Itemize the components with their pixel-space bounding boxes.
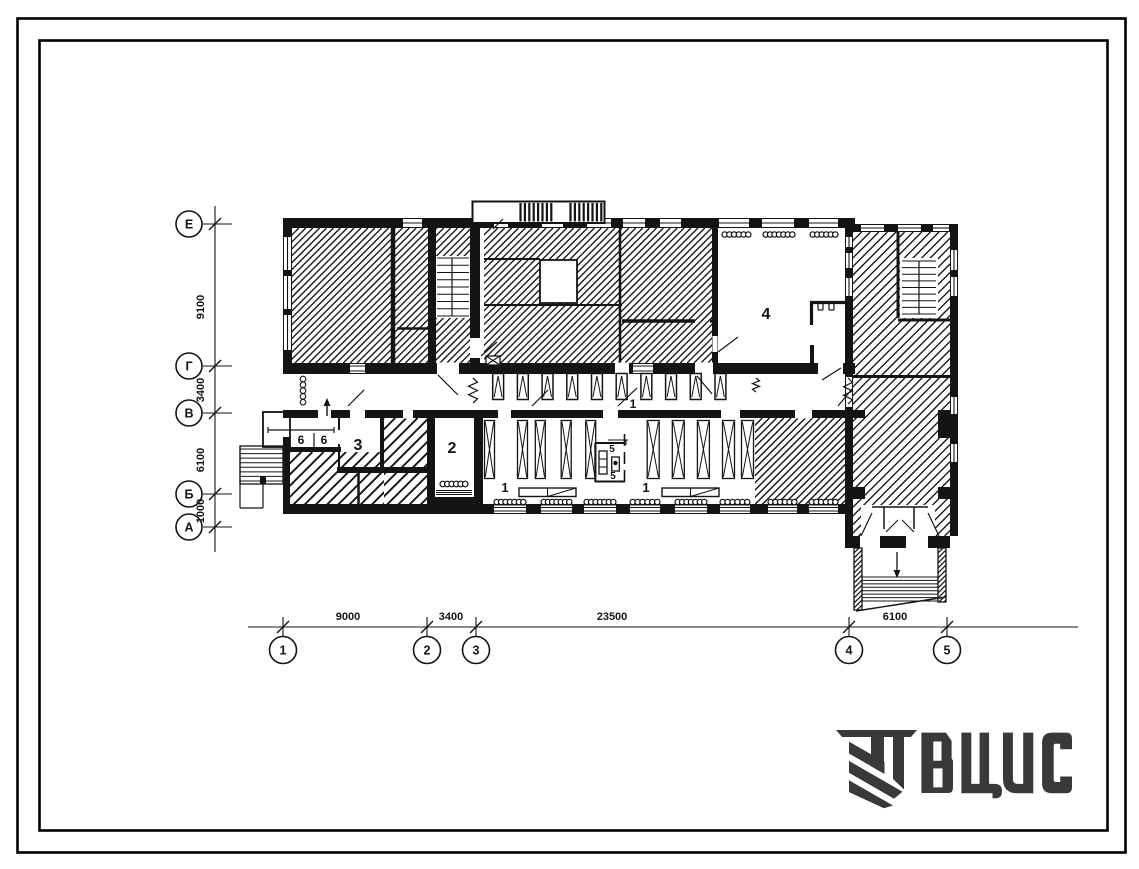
svg-text:4: 4 <box>762 306 771 323</box>
svg-text:1: 1 <box>280 644 287 658</box>
svg-text:5: 5 <box>944 644 951 658</box>
svg-text:6100: 6100 <box>195 448 207 472</box>
svg-text:В: В <box>184 407 193 421</box>
svg-text:1: 1 <box>501 480 508 495</box>
svg-text:1000: 1000 <box>195 499 207 523</box>
svg-text:4: 4 <box>846 644 853 658</box>
svg-text:5: 5 <box>609 444 615 455</box>
svg-text:1: 1 <box>630 397 637 411</box>
svg-text:А: А <box>184 521 193 535</box>
svg-text:5: 5 <box>610 471 616 482</box>
svg-text:1: 1 <box>642 480 649 495</box>
svg-text:6: 6 <box>321 433 328 447</box>
svg-text:3400: 3400 <box>439 611 463 623</box>
svg-text:6100: 6100 <box>883 611 907 623</box>
svg-text:2: 2 <box>424 644 431 658</box>
svg-text:9100: 9100 <box>195 295 207 319</box>
svg-text:3: 3 <box>354 437 363 454</box>
svg-text:Г: Г <box>185 360 192 374</box>
svg-text:23500: 23500 <box>597 611 628 623</box>
svg-text:9000: 9000 <box>336 611 360 623</box>
svg-text:3: 3 <box>473 644 480 658</box>
svg-text:2: 2 <box>448 440 457 457</box>
svg-text:3400: 3400 <box>195 378 207 402</box>
svg-text:6: 6 <box>298 433 305 447</box>
svg-text:Е: Е <box>185 218 193 232</box>
svg-text:Б: Б <box>185 488 194 502</box>
